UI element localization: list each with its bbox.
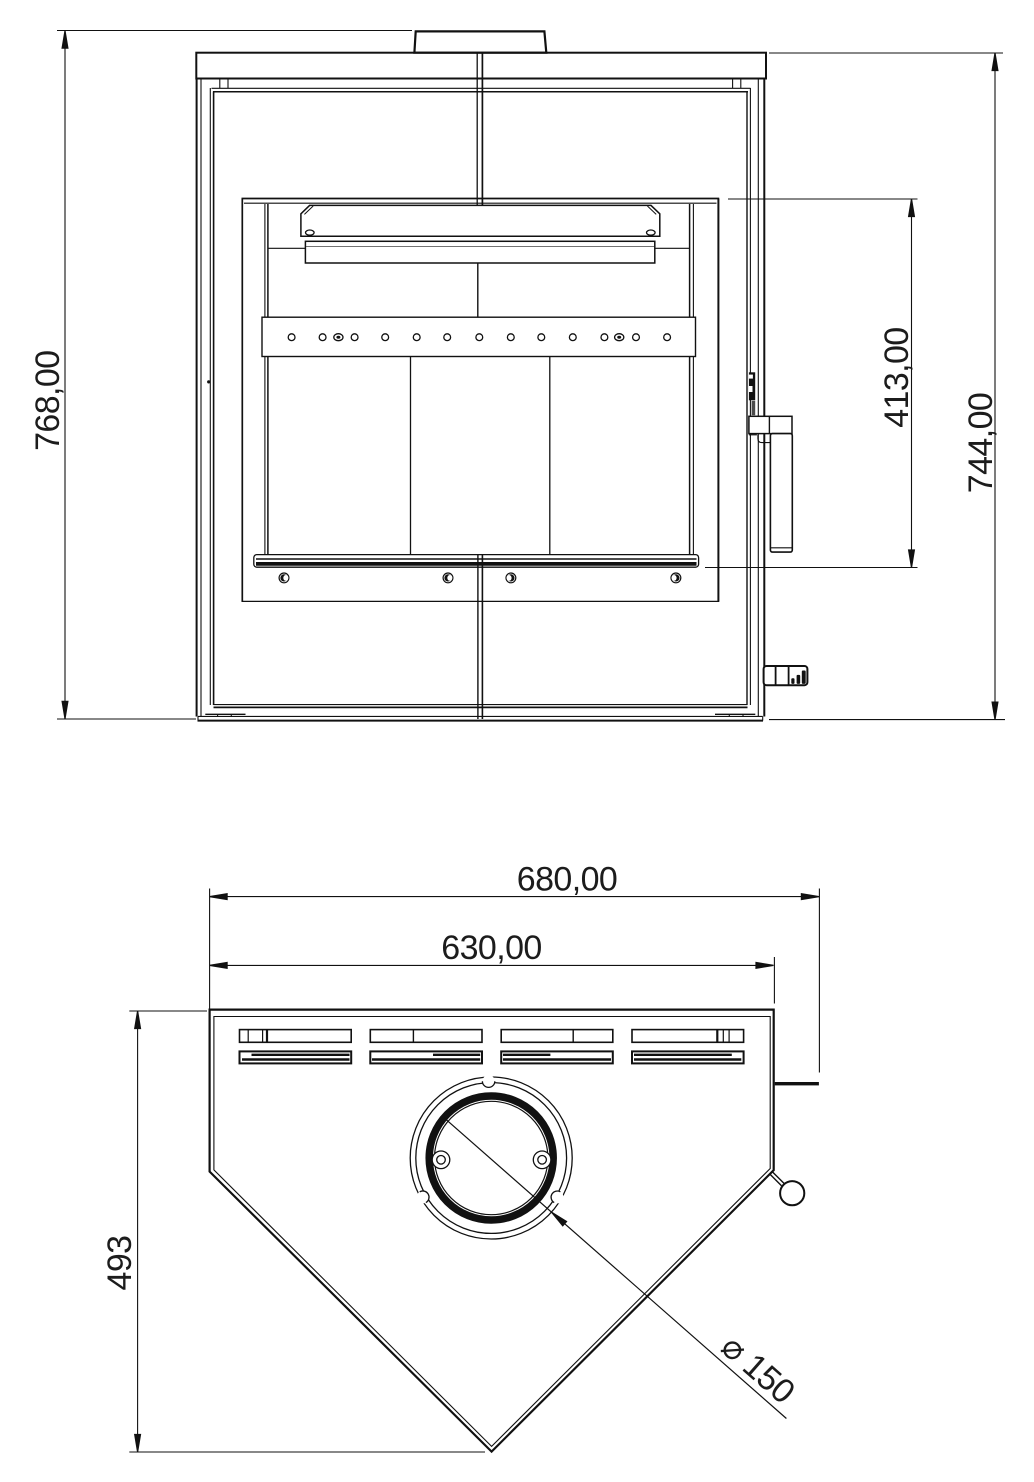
svg-text:768,00: 768,00 (29, 350, 67, 450)
svg-text:493: 493 (101, 1236, 139, 1291)
svg-text:630,00: 630,00 (441, 929, 541, 967)
svg-text:413,00: 413,00 (878, 327, 916, 427)
svg-text:680,00: 680,00 (517, 860, 617, 898)
svg-text:744,00: 744,00 (962, 393, 1000, 493)
